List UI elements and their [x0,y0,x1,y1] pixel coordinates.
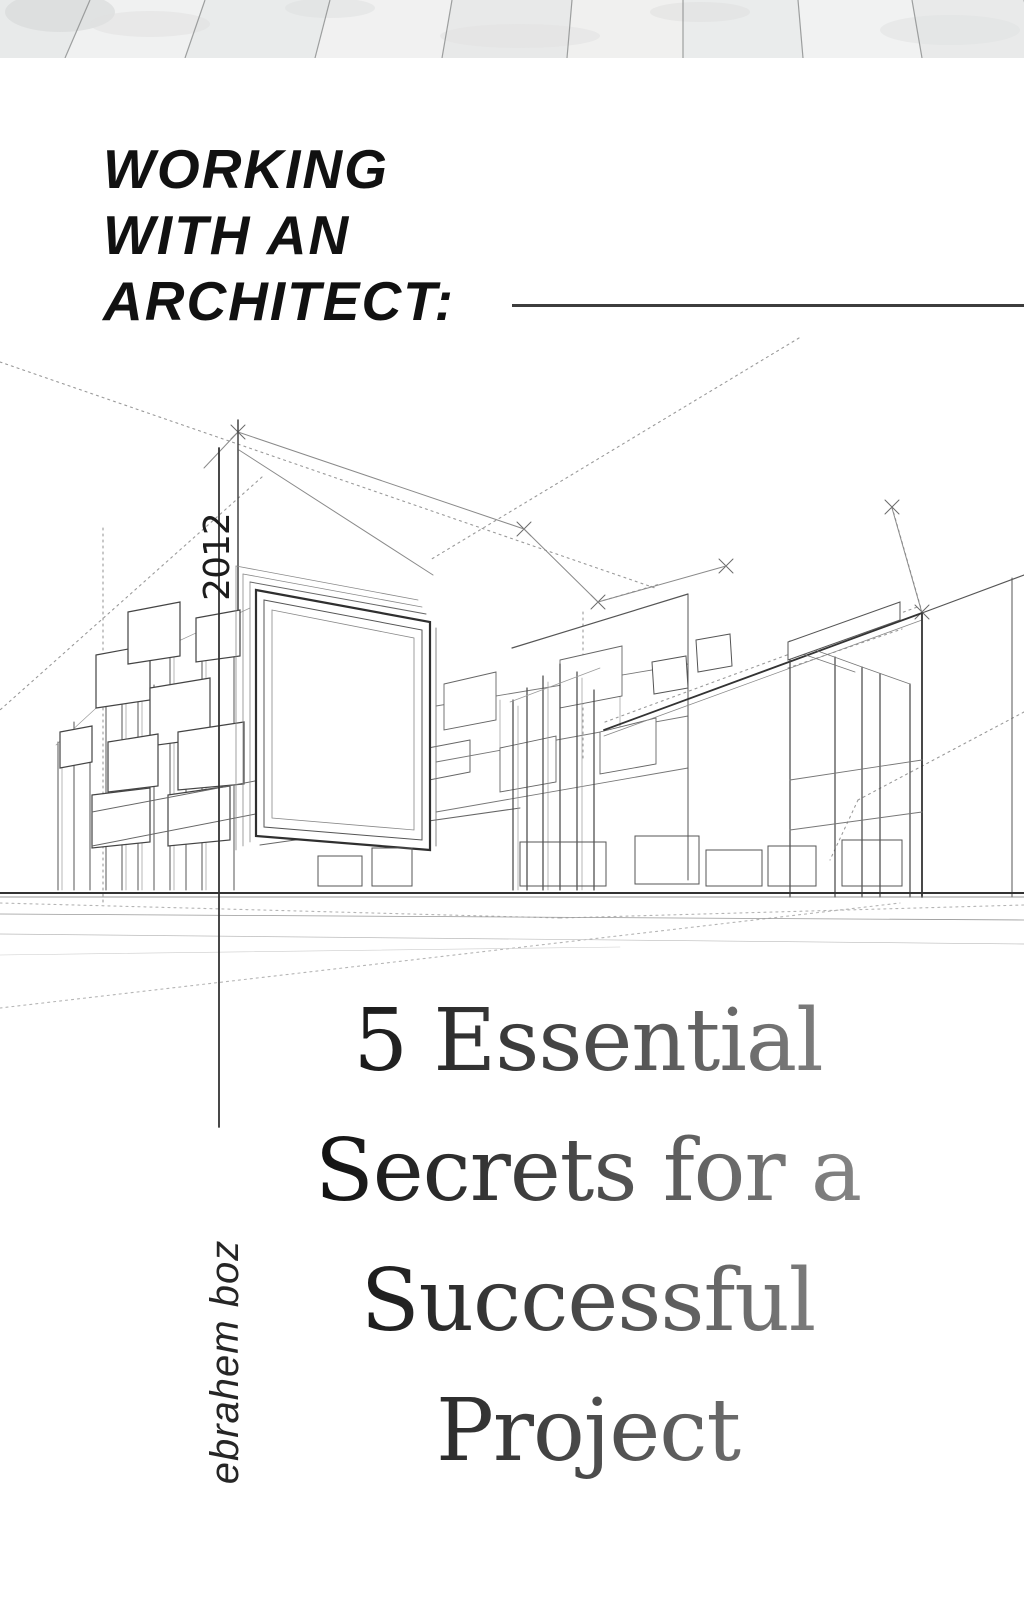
title-line-2: WITH AN [103,202,455,268]
title-line-3: ARCHITECT: [103,268,455,334]
subtitle-line-4: Project [168,1366,1008,1496]
title-rule [512,304,1024,307]
author-name: ebrahem boz [201,1217,249,1507]
year-label: 2012 [196,507,238,607]
page-title: WORKING WITH AN ARCHITECT: [103,136,455,334]
book-cover: WORKING WITH AN ARCHITECT: 2012 5 Essent… [0,0,1024,1600]
title-line-1: WORKING [103,136,455,202]
subtitle-line-2: Secrets for a [168,1106,1008,1236]
subtitle: 5 Essential Secrets for a Successful Pro… [168,976,1008,1496]
subtitle-line-3: Successful [168,1236,1008,1366]
subtitle-line-1: 5 Essential [168,976,1008,1106]
